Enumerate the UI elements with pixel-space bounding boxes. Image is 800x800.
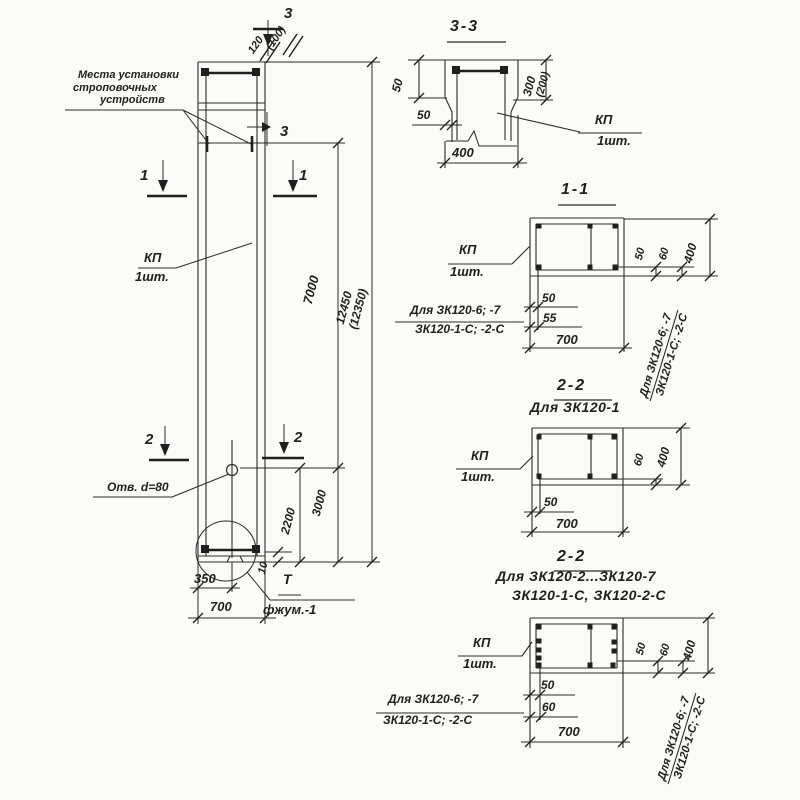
s11-dim-55: 55 [543,312,556,325]
section-2-2a-title: 2-2 [557,378,586,395]
kp-qty-main: 1шт. [135,270,169,284]
section-mark-1-left: 1 [140,168,148,184]
s11-dim-700: 700 [556,333,578,347]
s33-dim-50-bottom: 50 [417,109,430,122]
section-mark-1-right: 1 [299,168,307,184]
s22a-dim-700: 700 [556,517,578,531]
section-3-3-title: 3-3 [450,19,479,36]
sling-note-line3: устройств [100,95,165,107]
s33-kp-label: КП [595,113,612,127]
section-mark-3-top: 3 [284,6,292,22]
section-mark-2-right: 2 [294,430,302,446]
hole-label: Отв. d=80 [107,481,169,494]
s11-dim-50: 50 [542,292,555,305]
s11-kp-label: КП [459,243,476,257]
s33-dim-400: 400 [452,146,474,160]
sling-note-line1: Места установки [78,70,179,82]
s22b-dim-50: 50 [541,679,554,692]
s22a-kp-qty: 1шт. [461,470,495,484]
s33-kp-qty: 1шт. [597,134,631,148]
section-mark-3-bottom: 3 [280,124,288,140]
s22b-dim-700: 700 [558,725,580,739]
s22b-note-line1: Для ЗК120-6; -7 [388,693,478,706]
s11-kp-qty: 1шт. [450,265,484,279]
s22a-dim-50: 50 [544,496,557,509]
drawing-sheet: Места установки строповочных устройств К… [0,0,800,800]
section-1-1-title: 1-1 [561,182,590,199]
s22b-kp-label: КП [473,636,490,650]
s22b-subtitle2: ЗК120-1-С, ЗК120-2-С [512,588,666,603]
detail-callout-letter: Т [283,572,292,587]
kp-label-main: КП [144,251,161,265]
s22b-note-line2: ЗК120-1-С; -2-С [383,714,472,727]
s11-note-line1: Для ЗК120-6; -7 [410,304,500,317]
sling-note-line2: строповочных [73,83,157,95]
s22a-kp-label: КП [471,449,488,463]
detail-callout-name: фжум.-1 [263,603,316,617]
s22b-dim-60: 60 [542,701,555,714]
s22b-subtitle1: Для ЗК120-2...ЗК120-7 [496,569,656,584]
section-mark-2-left: 2 [145,432,153,448]
s22a-subtitle: Для ЗК120-1 [530,400,620,415]
dim-700-main: 700 [210,600,232,614]
dim-350: 350 [194,572,216,586]
s11-note-line2: ЗК120-1-С; -2-С [415,323,504,336]
drawing-linework [0,0,800,800]
section-2-2b-title: 2-2 [557,549,586,566]
s22b-kp-qty: 1шт. [463,657,497,671]
